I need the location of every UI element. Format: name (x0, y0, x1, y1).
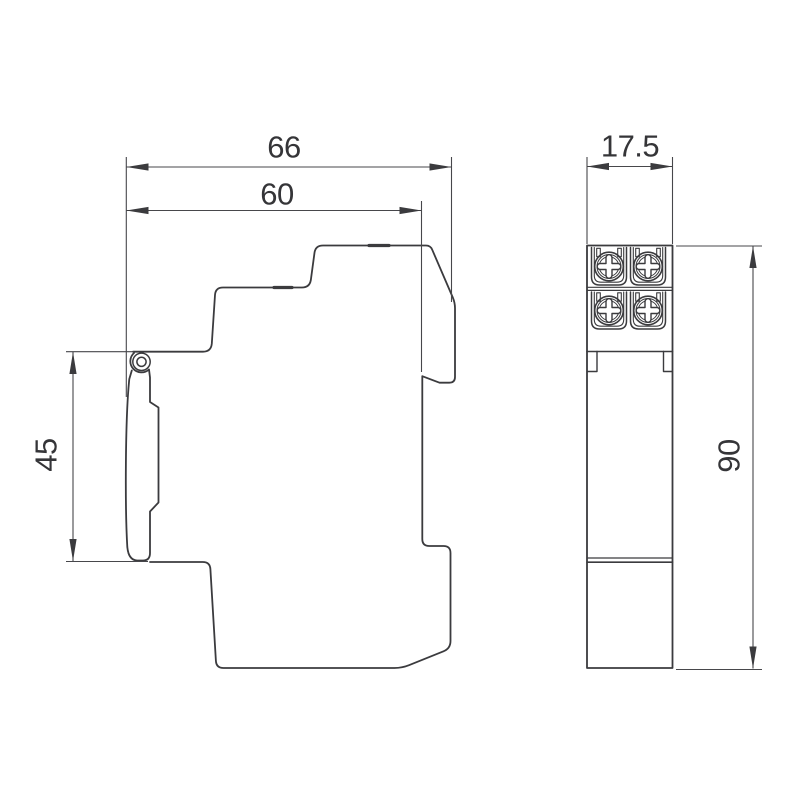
dim-label-overall-height: 90 (714, 439, 745, 472)
arrowhead-icon (587, 163, 609, 170)
dim-label-cover-height: 45 (31, 438, 62, 471)
terminal-cells (592, 248, 666, 330)
arrowhead-icon (127, 163, 149, 170)
side-view (126, 246, 455, 669)
dim-label-overall-width: 66 (267, 132, 300, 163)
terminal-screw-icon (595, 296, 624, 325)
front-view (587, 246, 673, 669)
side-view-body-outline (133, 246, 455, 669)
drawing-canvas: 66 60 45 17.5 90 (0, 0, 800, 800)
arrowhead-icon (651, 163, 673, 170)
terminal-cell (631, 292, 666, 329)
hinge-pin-icon (133, 353, 150, 370)
arrowhead-icon (430, 163, 452, 170)
arrowhead-icon (69, 539, 76, 561)
dimension-arrowheads (69, 163, 756, 669)
terminal-screw-icon (595, 252, 624, 281)
terminal-cell (592, 292, 627, 329)
side-wall-tabs (588, 352, 673, 372)
arrowhead-icon (69, 352, 76, 374)
terminal-cell (631, 248, 666, 286)
parting-marks (274, 246, 389, 288)
engineering-drawing (0, 0, 800, 800)
arrowhead-icon (400, 207, 422, 214)
dimension-lines (66, 157, 762, 670)
terminal-block-lines (587, 287, 673, 558)
arrowhead-icon (127, 207, 149, 214)
arrowhead-icon (749, 647, 756, 669)
terminal-screw-icon (634, 252, 663, 281)
terminal-cell (592, 248, 627, 286)
front-section-lines (587, 352, 673, 563)
arrowhead-icon (749, 246, 756, 268)
dim-label-body-width: 60 (260, 179, 293, 210)
terminal-screw-icon (634, 296, 663, 325)
dim-label-module-width: 17.5 (601, 131, 659, 162)
side-view-cover-flap (126, 353, 159, 561)
